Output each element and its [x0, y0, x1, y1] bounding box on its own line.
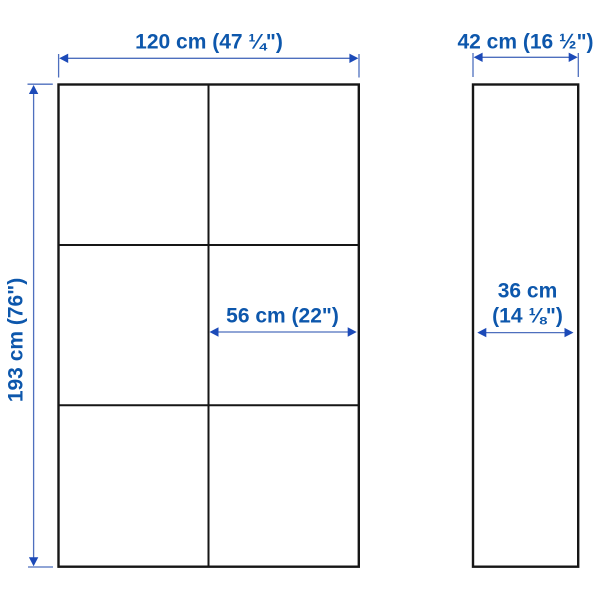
svg-text:193 cm (76"): 193 cm (76") [5, 278, 28, 402]
svg-text:(14 ⅛"): (14 ⅛") [492, 305, 563, 328]
svg-text:56 cm (22"): 56 cm (22") [226, 305, 339, 328]
svg-text:36 cm: 36 cm [498, 280, 558, 303]
svg-text:120 cm (47 ¼"): 120 cm (47 ¼") [135, 31, 283, 54]
svg-text:42 cm (16 ½"): 42 cm (16 ½") [457, 31, 593, 54]
